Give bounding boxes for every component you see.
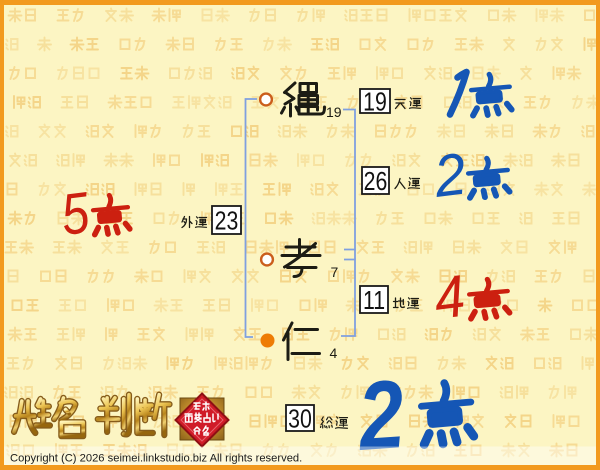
svg-text:19: 19 xyxy=(326,104,342,120)
svg-text:30: 30 xyxy=(288,404,312,434)
svg-text:26: 26 xyxy=(364,167,388,197)
svg-text:23: 23 xyxy=(215,206,239,236)
svg-text:7: 7 xyxy=(331,264,339,280)
svg-text:4: 4 xyxy=(330,345,338,361)
svg-text:19: 19 xyxy=(363,87,387,117)
svg-text:Copyright (C) 2026 seimei.link: Copyright (C) 2026 seimei.linkstudio.biz… xyxy=(10,453,302,465)
svg-text:11: 11 xyxy=(363,286,385,316)
